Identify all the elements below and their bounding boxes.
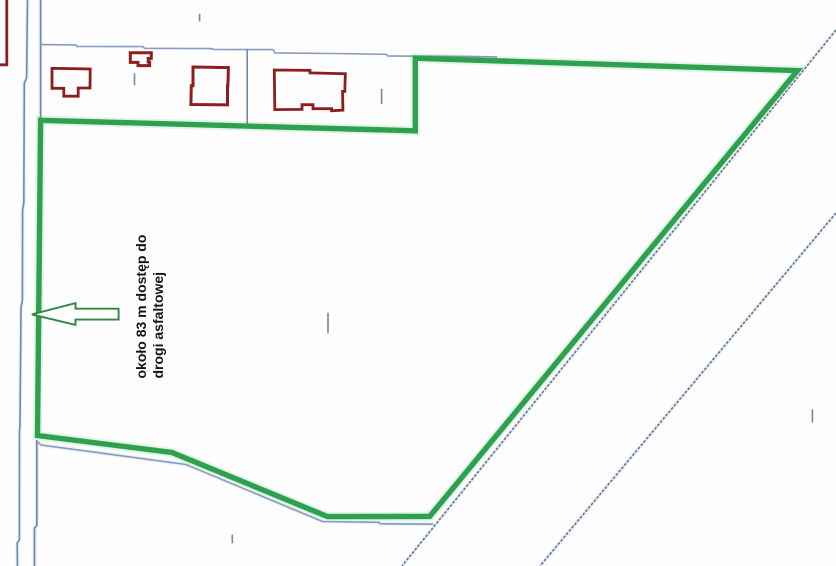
svg-text:drogi asfaltowej: drogi asfaltowej [150, 272, 166, 379]
svg-text:około 83 m dostęp do: około 83 m dostęp do [133, 235, 149, 379]
